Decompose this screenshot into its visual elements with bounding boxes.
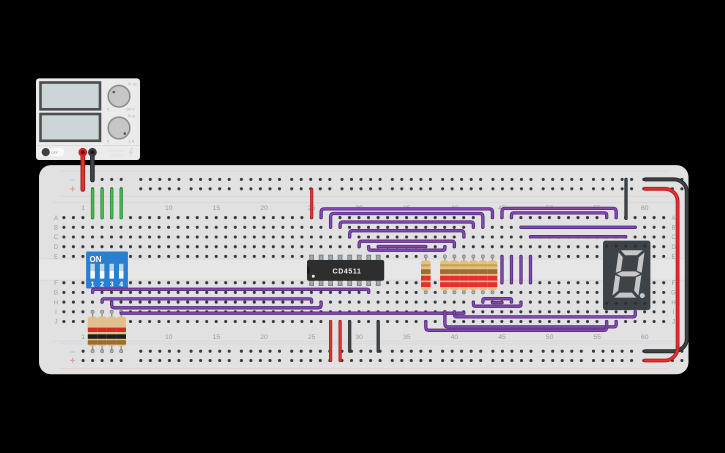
- svg-text:D: D: [671, 245, 676, 251]
- svg-text:A: A: [54, 216, 58, 222]
- svg-text:4: 4: [119, 281, 123, 288]
- svg-text:F: F: [672, 281, 676, 287]
- svg-text:1: 1: [81, 334, 85, 341]
- svg-text:1: 1: [81, 205, 85, 212]
- svg-text:F: F: [54, 281, 58, 287]
- svg-text:SUPPLY: SUPPLY: [111, 154, 126, 158]
- svg-text:C: C: [54, 235, 59, 241]
- svg-text:60: 60: [641, 334, 649, 341]
- svg-text:30: 30: [355, 334, 363, 341]
- svg-text:+: +: [70, 356, 76, 367]
- svg-text:1 A: 1 A: [129, 139, 135, 144]
- svg-text:40: 40: [451, 334, 459, 341]
- svg-text:J: J: [55, 320, 58, 326]
- svg-text:10: 10: [165, 334, 173, 341]
- svg-text:15: 15: [213, 334, 221, 341]
- svg-text:CD4511: CD4511: [333, 268, 362, 275]
- svg-text:J: J: [672, 320, 675, 326]
- svg-text:35: 35: [403, 334, 411, 341]
- svg-text:30 V: 30 V: [127, 107, 136, 112]
- svg-text:↻ VC: ↻ VC: [128, 82, 138, 87]
- svg-text:B: B: [54, 226, 58, 232]
- svg-text:20: 20: [260, 334, 268, 341]
- svg-text:H: H: [671, 300, 675, 306]
- svg-text:↻ A: ↻ A: [128, 114, 135, 119]
- svg-text:OFF: OFF: [51, 151, 59, 155]
- svg-text:ON: ON: [90, 255, 102, 264]
- svg-text:2: 2: [100, 281, 104, 288]
- svg-text:VOLTAGE: VOLTAGE: [108, 149, 125, 153]
- svg-text:45: 45: [498, 334, 506, 341]
- svg-text:50: 50: [546, 334, 554, 341]
- svg-text:B: B: [671, 226, 675, 232]
- svg-text:G: G: [54, 291, 59, 297]
- svg-text:C: C: [671, 235, 676, 241]
- svg-text:D: D: [54, 245, 59, 251]
- svg-text:15: 15: [213, 205, 221, 212]
- svg-text:E: E: [54, 255, 58, 261]
- svg-text:G: G: [671, 291, 676, 297]
- svg-text:A: A: [671, 216, 675, 222]
- svg-text:25: 25: [308, 334, 316, 341]
- svg-text:55: 55: [593, 334, 601, 341]
- svg-text:H: H: [54, 300, 58, 306]
- svg-text:3: 3: [110, 281, 114, 288]
- svg-text:60: 60: [641, 205, 649, 212]
- svg-text:1: 1: [91, 281, 95, 288]
- svg-text:E: E: [671, 255, 675, 261]
- svg-text:10: 10: [165, 205, 173, 212]
- svg-text:+: +: [70, 184, 76, 195]
- svg-text:20: 20: [260, 205, 268, 212]
